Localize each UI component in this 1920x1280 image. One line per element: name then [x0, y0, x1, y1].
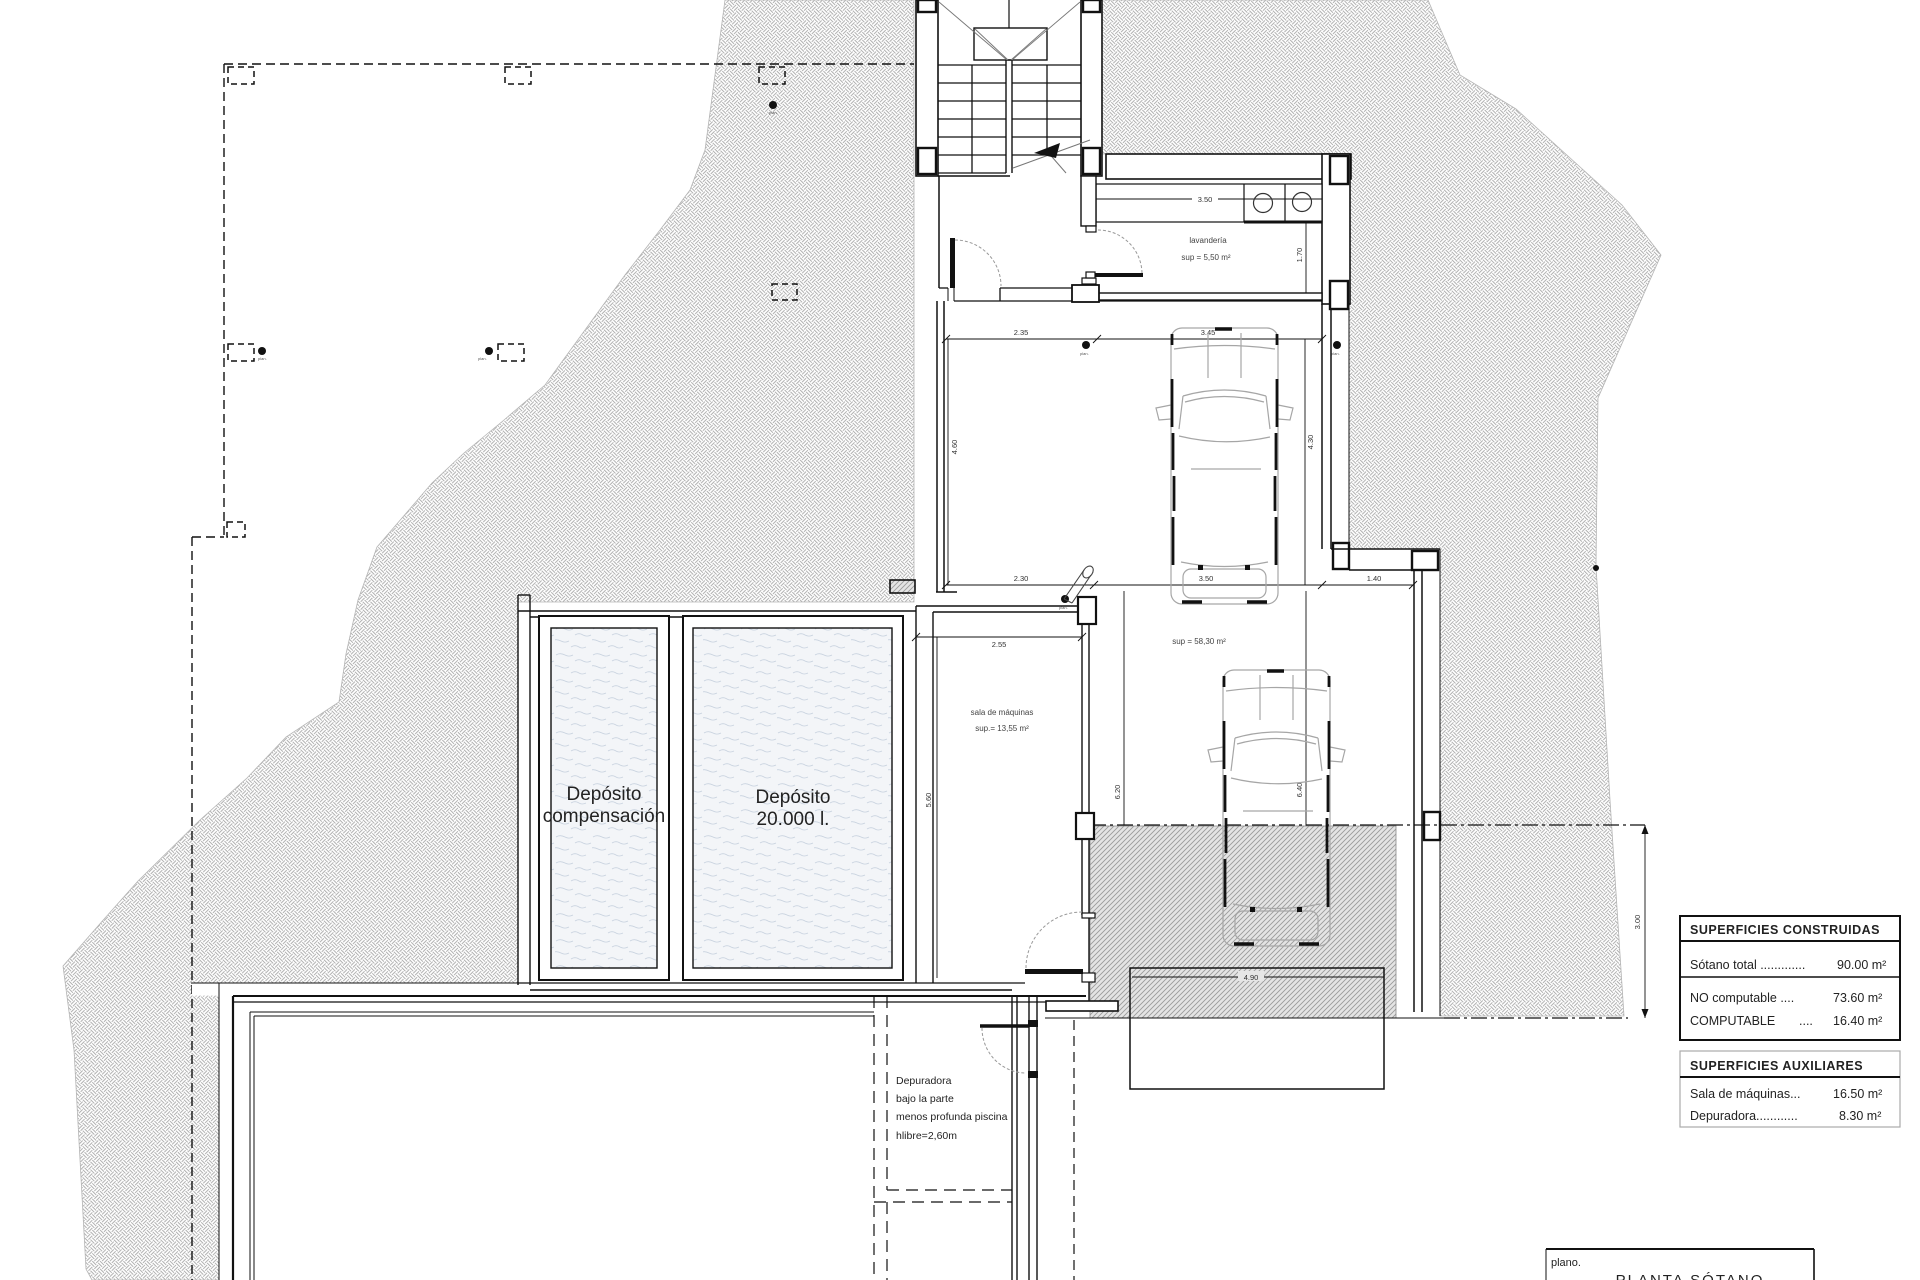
svg-text:5.60: 5.60 [924, 793, 933, 808]
svg-text:73.60 m²: 73.60 m² [1833, 991, 1882, 1005]
svg-text:plano.: plano. [1551, 1257, 1581, 1269]
svg-text:SUPERFICIES CONSTRUIDAS: SUPERFICIES CONSTRUIDAS [1690, 923, 1880, 937]
svg-text:Depósito: Depósito [567, 784, 642, 805]
svg-text:menos profunda piscina: menos profunda piscina [896, 1111, 1008, 1123]
svg-text:SUPERFICIES AUXILIARES: SUPERFICIES AUXILIARES [1690, 1059, 1863, 1073]
svg-text:sup = 58,30 m²: sup = 58,30 m² [1172, 637, 1226, 646]
svg-text:90.00 m²: 90.00 m² [1837, 958, 1886, 972]
svg-text:2.35: 2.35 [1014, 328, 1029, 337]
svg-text:....: .... [1799, 1014, 1813, 1028]
svg-text:2.55: 2.55 [992, 640, 1007, 649]
svg-text:Sótano total .............: Sótano total ............. [1690, 958, 1805, 972]
svg-text:lavandería: lavandería [1189, 236, 1227, 245]
svg-text:plan.: plan. [1331, 351, 1340, 356]
svg-text:PLANTA SÓTANO: PLANTA SÓTANO [1616, 1272, 1765, 1280]
svg-text:bajo la parte: bajo la parte [896, 1093, 954, 1105]
svg-text:sala de máquinas: sala de máquinas [971, 708, 1034, 717]
svg-text:4.90: 4.90 [1244, 973, 1259, 982]
svg-text:Depuradora: Depuradora [896, 1075, 952, 1087]
svg-text:plan.: plan. [769, 110, 778, 115]
svg-text:Depósito: Depósito [756, 787, 831, 808]
svg-text:Depuradora............: Depuradora............ [1690, 1109, 1798, 1123]
svg-text:20.000 l.: 20.000 l. [757, 809, 830, 830]
svg-text:compensación: compensación [543, 806, 666, 827]
svg-text:16.40 m²: 16.40 m² [1833, 1014, 1882, 1028]
svg-text:16.50 m²: 16.50 m² [1833, 1087, 1882, 1101]
svg-text:hlibre=2,60m: hlibre=2,60m [896, 1130, 957, 1142]
svg-text:sup = 5,50 m²: sup = 5,50 m² [1181, 253, 1230, 262]
svg-text:6.20: 6.20 [1113, 785, 1122, 800]
svg-text:4.60: 4.60 [950, 440, 959, 455]
svg-text:plan.: plan. [258, 356, 267, 361]
svg-text:plan.: plan. [1080, 351, 1089, 356]
svg-text:sup.= 13,55 m²: sup.= 13,55 m² [975, 724, 1029, 733]
svg-text:NO computable ....: NO computable .... [1690, 991, 1794, 1005]
svg-text:6.40: 6.40 [1295, 783, 1304, 798]
svg-text:plan.: plan. [478, 356, 487, 361]
svg-text:3.50: 3.50 [1199, 574, 1214, 583]
svg-text:3.50: 3.50 [1198, 195, 1213, 204]
svg-text:3.00: 3.00 [1633, 915, 1642, 930]
svg-text:1.40: 1.40 [1367, 574, 1382, 583]
svg-text:COMPUTABLE: COMPUTABLE [1690, 1014, 1775, 1028]
svg-text:4.30: 4.30 [1306, 435, 1315, 450]
svg-text:8.30 m²: 8.30 m² [1839, 1109, 1881, 1123]
svg-text:1.70: 1.70 [1295, 248, 1304, 263]
svg-text:2.30: 2.30 [1014, 574, 1029, 583]
svg-text:Sala de máquinas...: Sala de máquinas... [1690, 1087, 1801, 1101]
